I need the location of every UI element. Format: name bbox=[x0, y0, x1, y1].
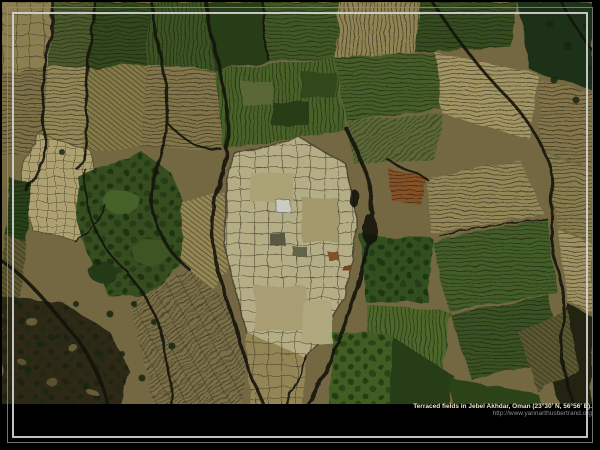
photo-credit-url: http://www.yannarthusbertrand.org bbox=[413, 411, 592, 417]
photo-caption: Terraced fields in Jebel Akhdar, Oman (2… bbox=[413, 404, 592, 417]
wallpaper-canvas: { "wallpaper": { "caption": "Terraced fi… bbox=[0, 0, 600, 450]
aerial-photo bbox=[2, 2, 592, 404]
aerial-photo-illustration bbox=[2, 2, 592, 404]
grain-overlay bbox=[2, 2, 592, 404]
